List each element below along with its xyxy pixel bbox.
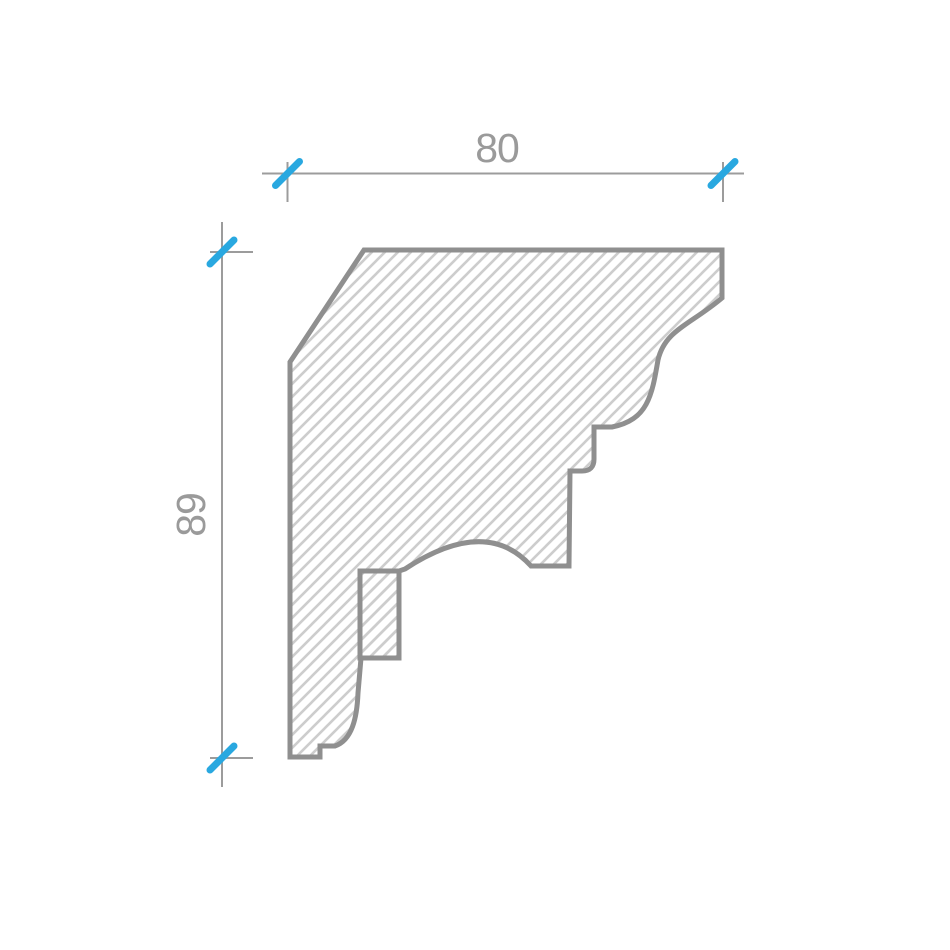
height-dimension: 89 xyxy=(168,222,253,787)
height-dimension-label: 89 xyxy=(168,493,214,537)
technical-drawing-canvas: 80 89 xyxy=(0,0,950,950)
molding-profile-shape xyxy=(290,250,722,757)
cornice-profile-drawing: 80 89 xyxy=(0,0,950,950)
width-dimension: 80 xyxy=(262,125,744,202)
width-dimension-label: 80 xyxy=(475,125,519,171)
profile-wall-tab xyxy=(360,571,399,658)
